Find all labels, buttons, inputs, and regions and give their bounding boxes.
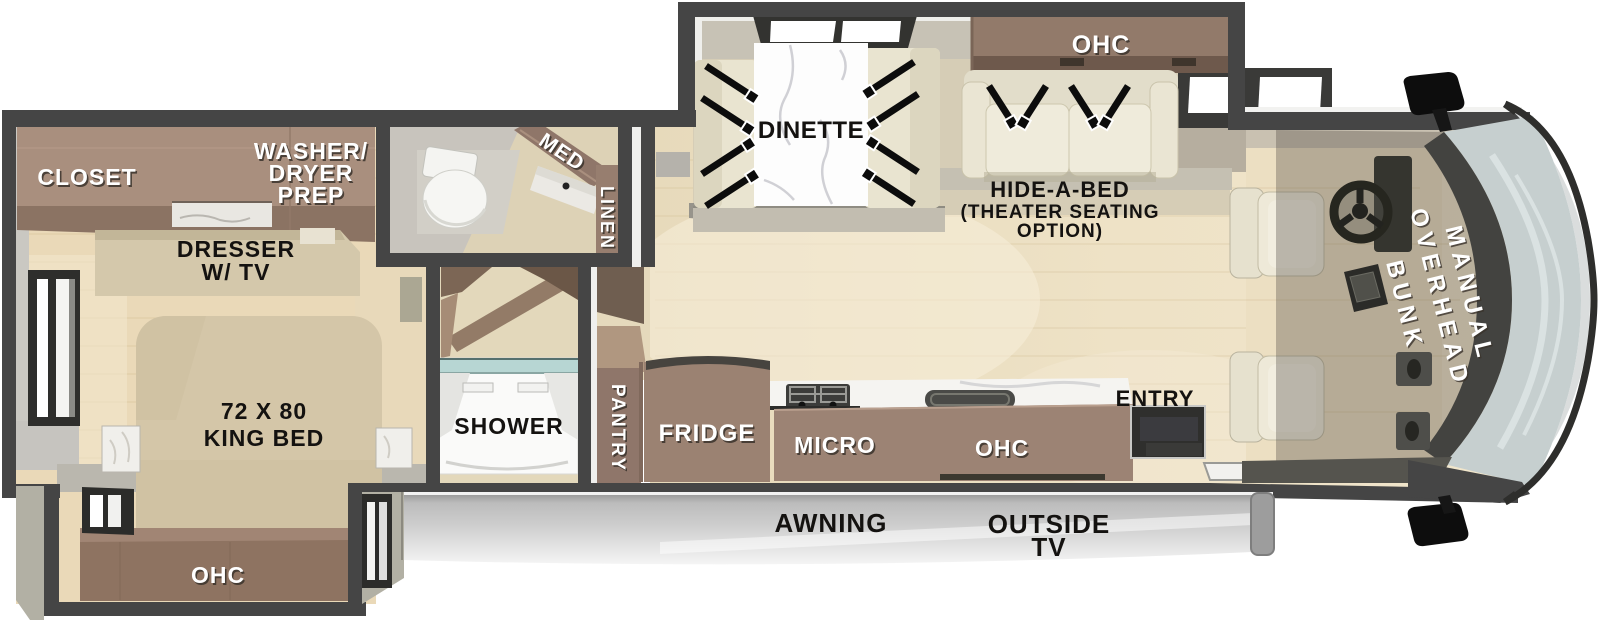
svg-text:HIDE-A-BED: HIDE-A-BED <box>990 177 1130 202</box>
svg-text:PANTRY: PANTRY <box>607 384 628 472</box>
svg-text:MICRO: MICRO <box>794 432 876 458</box>
svg-text:FRIDGE: FRIDGE <box>659 420 756 447</box>
svg-text:TV: TV <box>1031 532 1066 562</box>
svg-text:KING BED: KING BED <box>204 425 324 451</box>
svg-text:AWNING: AWNING <box>775 508 888 538</box>
svg-text:DINETTE: DINETTE <box>758 117 864 144</box>
svg-text:SHOWER: SHOWER <box>454 413 564 439</box>
svg-text:OHC: OHC <box>975 435 1029 461</box>
svg-text:ENTRY: ENTRY <box>1116 386 1195 411</box>
svg-text:OHC: OHC <box>191 562 245 588</box>
svg-text:CLOSET: CLOSET <box>37 164 136 190</box>
svg-text:W/ TV: W/ TV <box>202 259 271 285</box>
svg-text:(THEATER SEATING: (THEATER SEATING <box>961 202 1160 223</box>
svg-text:PREP: PREP <box>278 182 345 208</box>
svg-text:72 X 80: 72 X 80 <box>221 398 307 424</box>
svg-text:OHC: OHC <box>1072 31 1131 59</box>
svg-text:LINEN: LINEN <box>597 186 617 250</box>
svg-text:OPTION): OPTION) <box>1017 221 1103 242</box>
